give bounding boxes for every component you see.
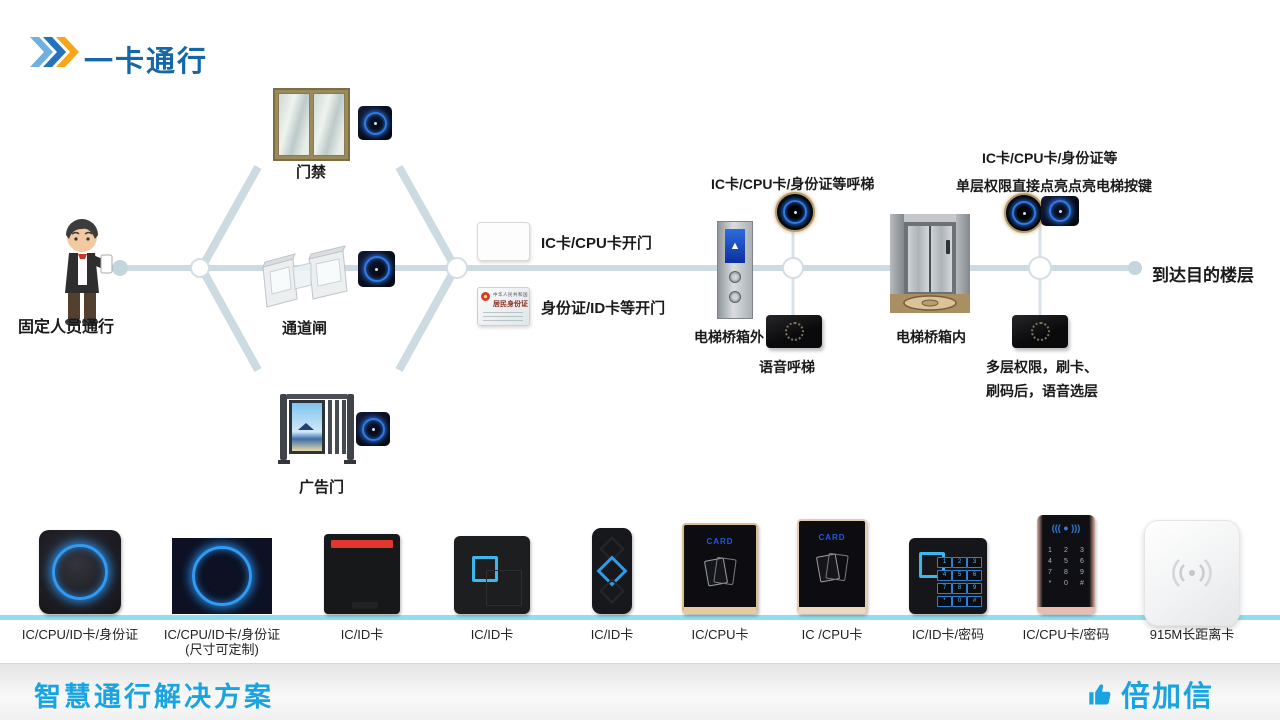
product-label: IC/CPU/ID卡/身份证 bbox=[5, 627, 155, 642]
multi-floor-label-line1: 多层权限，刷卡、 bbox=[986, 357, 1098, 377]
product-label: IC/ID卡/密码 bbox=[888, 627, 1008, 642]
big-ring-reader-icon bbox=[172, 538, 272, 614]
elevator-cabin-image bbox=[890, 214, 970, 313]
product-label: IC/ID卡 bbox=[430, 627, 554, 642]
wave-icon: ((( ● ))) bbox=[1037, 523, 1095, 533]
id-card-emblem bbox=[481, 292, 490, 301]
reader-ring bbox=[783, 200, 807, 224]
product-redstrip-reader: IC/ID卡 bbox=[300, 512, 424, 642]
product-sublabel: (尺寸可定制) bbox=[185, 642, 259, 657]
call-elevator-label: IC卡/CPU卡/身份证等呼梯 bbox=[711, 174, 874, 194]
ad-door-label: 广告门 bbox=[299, 476, 344, 497]
call-panel-screen: ▲ bbox=[725, 229, 745, 263]
product-label: IC/ID卡 bbox=[300, 627, 424, 642]
person-label: 固定人员通行 bbox=[18, 313, 114, 337]
inside-cards-label: IC卡/CPU卡/身份证等 bbox=[982, 148, 1117, 168]
reader-ring bbox=[364, 112, 387, 135]
keypad-reader-icon: 123456789*0# bbox=[909, 538, 987, 614]
product-square-reader: IC/ID卡 bbox=[430, 512, 554, 642]
id-card-country-text: 中华人民共和国 bbox=[493, 292, 528, 298]
id-card-lines bbox=[483, 312, 523, 321]
product-long-range-reader: 915M长距离卡 bbox=[1132, 512, 1252, 642]
card-outline-icon bbox=[713, 557, 736, 586]
elevator-call-panel-image: ▲ bbox=[717, 221, 753, 319]
card-reader-icon bbox=[358, 251, 395, 287]
brand-logo: 倍加信 bbox=[1087, 673, 1214, 715]
round-card-reader-icon bbox=[775, 192, 815, 232]
slide: 一卡通行 固定人员通行 门禁 bbox=[0, 0, 1280, 720]
id-card-title-text: 居民身份证 bbox=[493, 299, 528, 309]
outside-cabin-label: 电梯桥箱外 bbox=[694, 327, 764, 347]
reader-ring bbox=[364, 256, 390, 282]
red-indicator-bar bbox=[331, 540, 393, 548]
keypad-tower-icon: ((( ● ))) 123456789*0# bbox=[1037, 515, 1095, 614]
product-card-glass-reader-2: CARD IC /CPU卡 bbox=[778, 512, 886, 642]
card-reader-icon bbox=[356, 412, 390, 446]
product-keypad-tower: ((( ● ))) 123456789*0# IC/CPU卡/密码 bbox=[1008, 512, 1124, 642]
reader-ring bbox=[362, 418, 385, 441]
diamond-detail bbox=[599, 578, 624, 603]
speed-gate-image bbox=[257, 237, 353, 317]
ic-card-image bbox=[477, 222, 530, 261]
panel-detail bbox=[486, 570, 522, 606]
product-ring-reader: IC/CPU/ID卡/身份证 bbox=[5, 512, 155, 642]
product-label: IC/ID卡 bbox=[554, 627, 670, 642]
card-glass-reader-icon: CARD bbox=[797, 519, 867, 614]
connector-lines bbox=[0, 0, 1280, 520]
footer-title: 智慧通行解决方案 bbox=[34, 675, 274, 714]
ad-door-image bbox=[278, 392, 356, 468]
reader-ring bbox=[1049, 200, 1071, 222]
product-label: IC/CPU卡 bbox=[664, 627, 776, 642]
product-big-ring-reader: IC/CPU/ID卡/身份证 (尺寸可定制) bbox=[152, 512, 292, 657]
id-card-image: 中华人民共和国 居民身份证 bbox=[477, 287, 530, 326]
reader-slot bbox=[352, 602, 378, 609]
reader-ring bbox=[192, 546, 252, 606]
redstrip-reader-icon bbox=[324, 534, 400, 614]
brand-name: 倍加信 bbox=[1121, 673, 1214, 715]
product-label: IC /CPU卡 bbox=[778, 627, 886, 642]
card-open-label: IC卡/CPU卡开门 bbox=[541, 232, 652, 253]
card-reader-icon bbox=[358, 106, 392, 140]
call-panel-button bbox=[729, 291, 741, 303]
voice-call-device-image bbox=[766, 315, 822, 348]
thumbs-up-icon bbox=[1087, 680, 1115, 708]
card-screen-text: CARD bbox=[684, 537, 756, 546]
square-reader-icon bbox=[454, 536, 530, 614]
product-keypad-reader: 123456789*0# IC/ID卡/密码 bbox=[888, 512, 1008, 642]
access-door-image bbox=[273, 88, 350, 161]
speed-gate-label: 通道闸 bbox=[282, 317, 327, 338]
long-range-reader-icon bbox=[1144, 520, 1240, 626]
access-door-label: 门禁 bbox=[296, 161, 326, 182]
product-label: 915M长距离卡 bbox=[1132, 627, 1252, 642]
reader-ring bbox=[1012, 201, 1036, 225]
diamond-reader-icon bbox=[592, 528, 632, 614]
call-panel-button bbox=[729, 271, 741, 283]
voice-select-device-image bbox=[1012, 315, 1068, 348]
voice-call-label: 语音呼梯 bbox=[759, 357, 815, 377]
keypad-keys: 123456789*0# bbox=[937, 557, 980, 607]
card-screen-text: CARD bbox=[799, 533, 865, 542]
product-diamond-reader: IC/ID卡 bbox=[554, 512, 670, 642]
destination-label: 到达目的楼层 bbox=[1152, 261, 1254, 286]
product-label: IC/CPU/ID卡/身份证 (尺寸可定制) bbox=[152, 627, 292, 657]
product-label: IC/CPU卡/密码 bbox=[1008, 627, 1124, 642]
reader-ring bbox=[52, 544, 108, 600]
idcard-open-label: 身份证/ID卡等开门 bbox=[541, 297, 665, 318]
door-pane bbox=[313, 93, 345, 156]
rfid-wave-icon bbox=[1172, 553, 1212, 593]
speaker-icon bbox=[1031, 322, 1050, 341]
door-pane bbox=[278, 93, 310, 156]
inside-cabin-label: 电梯桥箱内 bbox=[896, 327, 966, 347]
speaker-icon bbox=[785, 322, 804, 341]
card-glass-reader-icon: CARD bbox=[682, 523, 758, 614]
product-card-glass-reader: CARD IC/CPU卡 bbox=[664, 512, 776, 642]
multi-floor-label-line2: 刷码后，语音选层 bbox=[986, 381, 1098, 401]
single-floor-label: 单层权限直接点亮点亮电梯按键 bbox=[956, 176, 1152, 196]
card-outline-icon bbox=[825, 553, 848, 582]
up-arrow-icon: ▲ bbox=[730, 240, 741, 252]
round-card-reader-icon bbox=[1004, 193, 1044, 233]
ring-reader-icon bbox=[39, 530, 121, 614]
footer-bar: 智慧通行解决方案 倍加信 bbox=[0, 663, 1280, 720]
keypad-keys: 123456789*0# bbox=[1044, 547, 1088, 588]
card-reader-icon bbox=[1041, 196, 1079, 226]
